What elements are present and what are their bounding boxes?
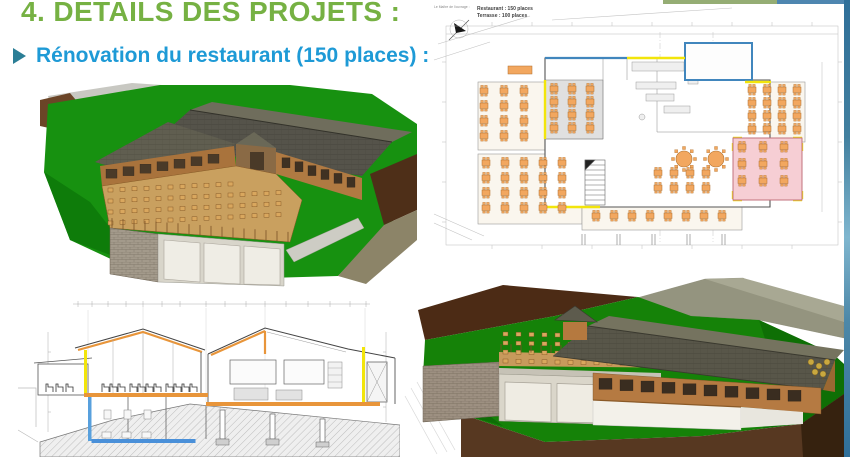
section-foundation-blue	[92, 439, 196, 443]
figure-floor-plan: Le Maître de l'ouvrage : Restaurant : 15…	[432, 2, 844, 252]
floor-plan-image: Le Maître de l'ouvrage : Restaurant : 15…	[432, 2, 844, 252]
plan-legend-restaurant: Restaurant : 150 places	[477, 6, 533, 12]
section-left-building	[75, 329, 205, 393]
slide-title: 4. DETAILS DES PROJETS :	[21, 0, 400, 28]
section-construction-lines	[88, 304, 365, 402]
bullet-arrow-icon	[13, 48, 26, 64]
presentation-slide: 4. DETAILS DES PROJETS : Rénovation du r…	[0, 0, 850, 457]
bullet-text: Rénovation du restaurant (150 places) :	[36, 44, 429, 68]
section-wall-yellow-left	[84, 350, 87, 393]
section-floor-left	[84, 393, 208, 397]
figure-3d-render-rear	[403, 276, 844, 457]
bullet-row: Rénovation du restaurant (150 places) :	[13, 44, 429, 68]
render-rear-image	[403, 276, 844, 457]
north-arrow-icon	[449, 20, 469, 40]
plan-parking-ticks	[582, 234, 725, 245]
section-image	[18, 292, 400, 457]
section-right-building	[208, 328, 395, 404]
rear-stone-wall	[423, 362, 499, 422]
plan-legend-terrasse: Terrasse : 100 places	[477, 13, 527, 19]
right-accent-strip	[844, 0, 850, 457]
plan-stairs	[585, 160, 605, 205]
plan-buffet-strip	[508, 66, 532, 74]
plan-rooms-blue	[685, 43, 752, 80]
render-front-image	[40, 82, 420, 290]
figure-3d-render-front	[40, 82, 420, 290]
figure-section-drawing	[18, 292, 400, 457]
section-wall-yellow-right	[362, 347, 365, 402]
section-floor-right	[206, 402, 380, 406]
plan-owner-label: Le Maître de l'ouvrage :	[434, 5, 470, 9]
section-wall-blue	[88, 397, 92, 441]
